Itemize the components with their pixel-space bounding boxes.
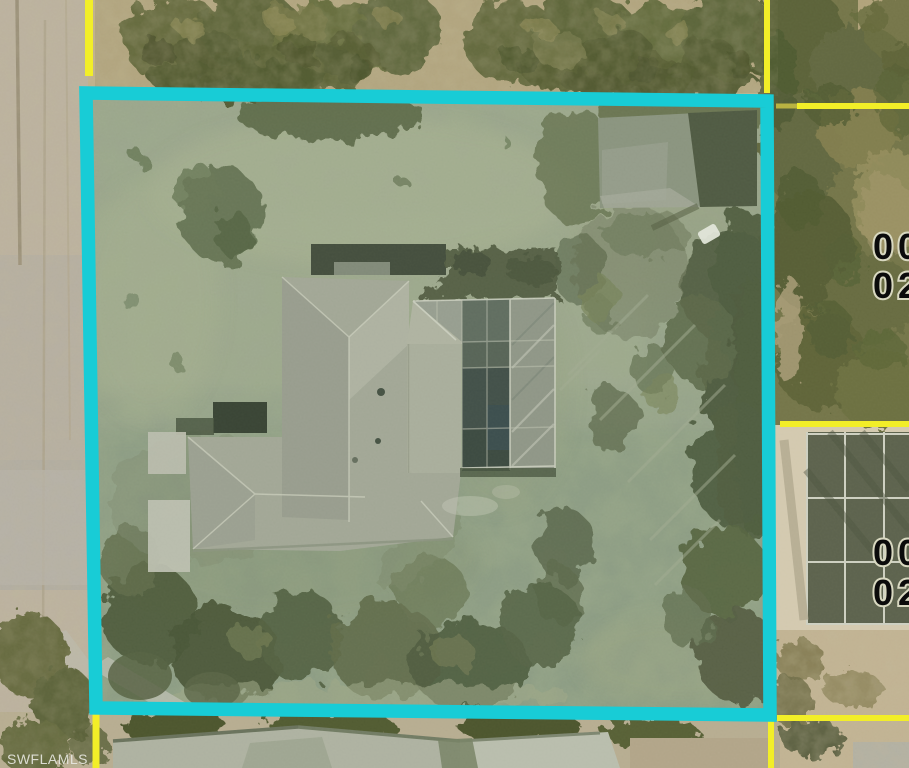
svg-text:02: 02	[873, 572, 909, 613]
svg-text:02: 02	[873, 265, 909, 306]
svg-text:00: 00	[873, 226, 909, 267]
svg-text:00: 00	[873, 532, 909, 573]
svg-text:SWFLAMLS: SWFLAMLS	[7, 751, 88, 767]
